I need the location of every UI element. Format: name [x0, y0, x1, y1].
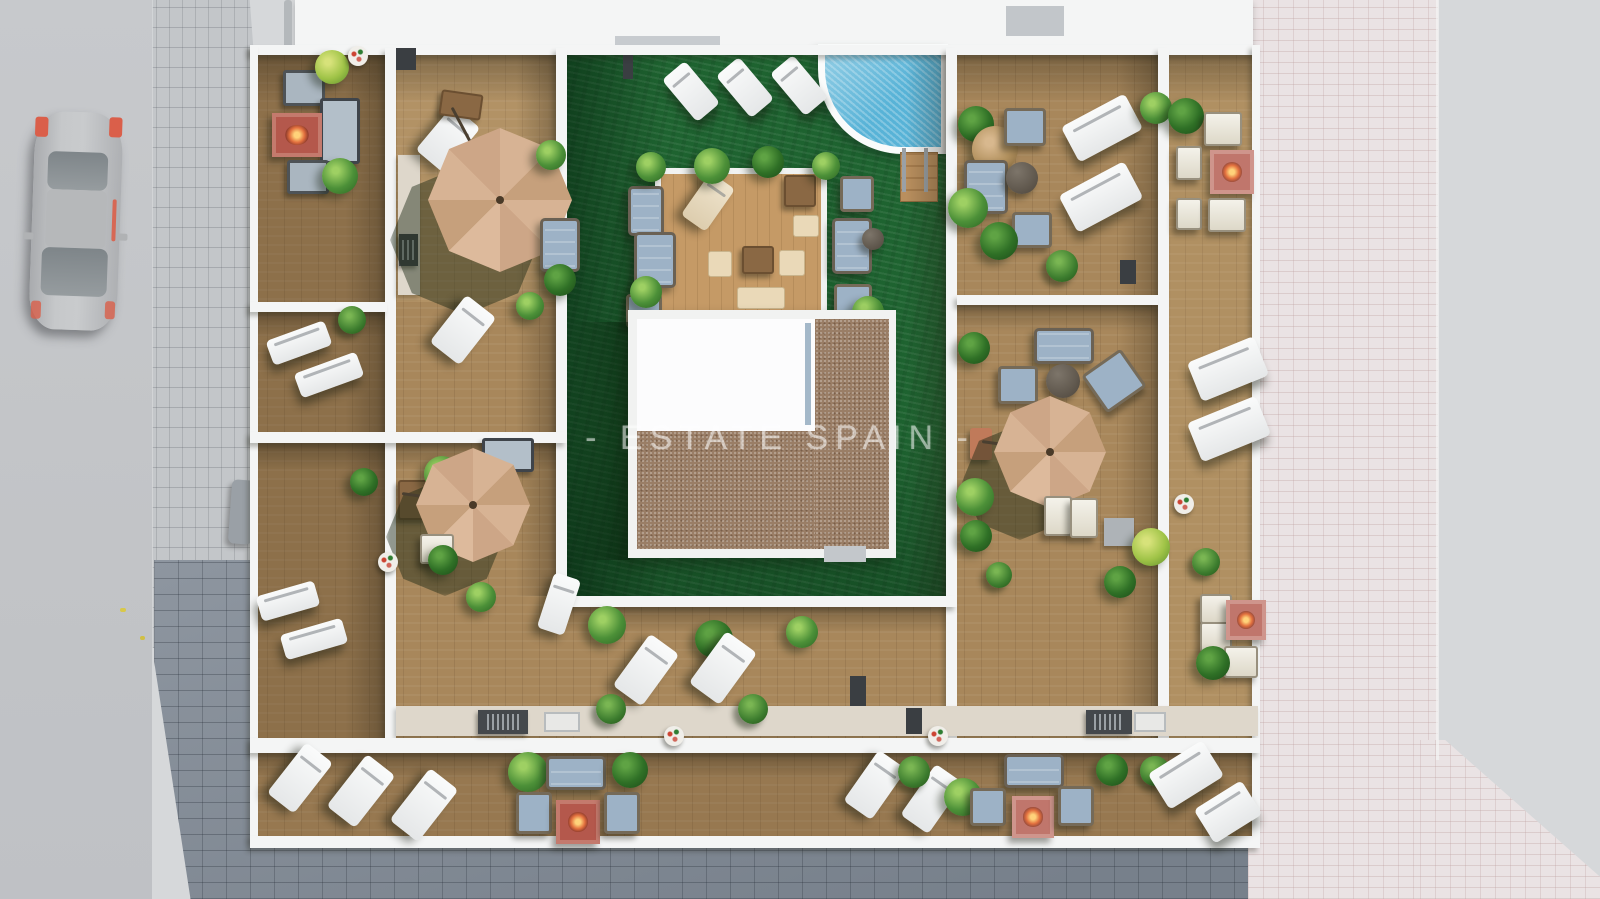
wall-unit — [1120, 260, 1136, 284]
seat-cushion — [1044, 496, 1072, 536]
bush — [1192, 548, 1220, 576]
seat-cushion — [1176, 146, 1202, 180]
divider-wall-vertical — [385, 48, 396, 743]
car-rear-window — [47, 151, 108, 191]
deck-mat — [1104, 518, 1134, 546]
bush — [898, 756, 930, 788]
rooftop-unit-box — [1006, 6, 1064, 36]
divider-wall-vertical — [1158, 48, 1169, 743]
fire-pit-table — [1210, 150, 1254, 194]
plant — [508, 752, 548, 792]
armchair — [998, 366, 1038, 404]
round-table — [1046, 364, 1080, 398]
garden-sofa — [628, 186, 664, 236]
garden-round-table — [862, 228, 884, 250]
divider-wall-horizontal — [250, 302, 387, 312]
plant — [636, 152, 666, 182]
sofa — [1034, 328, 1094, 364]
seat-cushion — [1176, 198, 1202, 230]
plant — [466, 582, 496, 612]
car-roof — [45, 189, 107, 249]
neighbor-roof-white — [295, 0, 1253, 48]
pergola-cushion — [708, 251, 732, 277]
plant — [1096, 754, 1128, 786]
car-mirror-right — [117, 233, 127, 240]
plant — [694, 148, 730, 184]
core-access-step — [824, 546, 866, 562]
bbq-grill — [478, 710, 528, 734]
armchair — [1004, 108, 1046, 146]
lawn-wall-bottom — [556, 596, 957, 607]
plant — [1196, 646, 1230, 680]
lawn-service-pole — [623, 55, 633, 79]
divider-wall-bottom — [250, 738, 1260, 753]
plant — [960, 520, 992, 552]
fire-pit-table — [272, 113, 322, 157]
bbq-sink — [544, 712, 580, 732]
plant — [1168, 98, 1204, 134]
plant — [428, 545, 458, 575]
armchair — [1012, 212, 1052, 248]
pergola-cushion — [779, 250, 805, 276]
plant — [322, 158, 358, 194]
street-debris — [140, 636, 145, 640]
armchair — [604, 792, 640, 834]
street-debris — [120, 608, 126, 612]
aerial-render-canvas: - ESTATE SPAIN - — [0, 0, 1600, 899]
bbq-unit — [906, 708, 922, 734]
round-table — [1006, 162, 1038, 194]
sofa — [1004, 754, 1064, 788]
flower-pot — [1174, 494, 1194, 514]
pergola-coffee-table — [742, 246, 774, 274]
potted-plant — [786, 616, 818, 648]
bush — [596, 694, 626, 724]
bbq-sink — [1134, 712, 1166, 732]
car-windshield — [40, 247, 108, 297]
plant — [315, 50, 349, 84]
car-headlight-left — [31, 300, 42, 318]
fire-pit-table — [1012, 796, 1054, 838]
parked-car — [24, 108, 128, 333]
car-taillight-right — [109, 117, 123, 137]
flower-pot — [378, 552, 398, 572]
divider-wall-horizontal — [957, 295, 1158, 305]
wall-unit — [396, 48, 416, 70]
armchair — [516, 792, 552, 834]
flower-pot — [348, 46, 368, 66]
plant — [350, 468, 378, 496]
bush — [738, 694, 768, 724]
plant — [1140, 92, 1172, 124]
pergola-cushion — [793, 215, 819, 237]
lounge-chair — [1208, 198, 1246, 232]
bush — [1046, 250, 1078, 282]
pink-cobble-corner — [1420, 740, 1600, 899]
bush — [338, 306, 366, 334]
plant — [812, 152, 840, 180]
sofa — [320, 98, 360, 164]
armchair — [970, 788, 1006, 826]
plant — [948, 188, 988, 228]
pergola-table — [784, 175, 816, 207]
garden-armchair — [840, 176, 874, 212]
plant — [1132, 528, 1170, 566]
car-taillight-left — [35, 117, 49, 137]
core-skylight — [805, 323, 811, 425]
car-headlight-right — [105, 301, 116, 319]
lounge-chair — [1204, 112, 1242, 146]
car-mirror-left — [23, 232, 33, 239]
plant — [536, 140, 566, 170]
fire-pit-table — [556, 800, 600, 844]
plant — [516, 292, 544, 320]
flower-pot — [664, 726, 684, 746]
bbq-grill — [1086, 710, 1132, 734]
bush — [986, 562, 1012, 588]
watermark: - ESTATE SPAIN - — [570, 416, 990, 460]
plant — [752, 146, 784, 178]
promenade-curb — [1436, 0, 1439, 760]
lawn-wall-right — [946, 48, 957, 743]
lawn-wall-left — [556, 48, 567, 608]
plant — [958, 332, 990, 364]
flower-pot — [928, 726, 948, 746]
pergola-bench-cushion — [737, 287, 785, 309]
pink-cobble-promenade — [1248, 0, 1438, 899]
plant — [612, 752, 648, 788]
plant — [630, 276, 662, 308]
wall-shadow — [906, 48, 946, 596]
armchair — [1058, 786, 1094, 826]
parasol — [994, 396, 1106, 508]
parapet-bottom — [250, 836, 1260, 848]
plant — [1104, 566, 1136, 598]
wall-unit — [850, 676, 866, 706]
potted-plant — [588, 606, 626, 644]
core-roof-white — [637, 319, 815, 431]
plant — [956, 478, 994, 516]
plant — [980, 222, 1018, 260]
sofa — [546, 756, 606, 790]
plant — [544, 264, 576, 296]
fire-pit-table — [1226, 600, 1266, 640]
seat-cushion — [1070, 498, 1098, 538]
